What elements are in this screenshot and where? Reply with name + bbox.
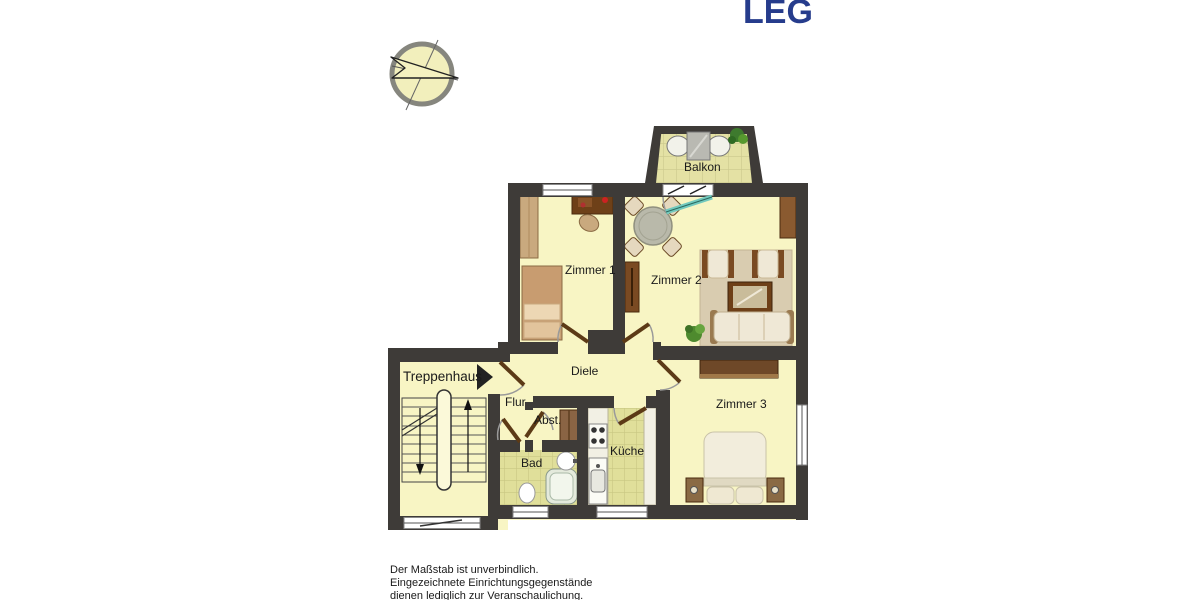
- disclaimer-line: Eingezeichnete Einrichtungsgegenstände: [390, 577, 592, 590]
- wardrobe: [700, 360, 778, 378]
- kitchen-cupboard: [644, 408, 656, 505]
- window: [543, 185, 592, 196]
- bathtub: [546, 469, 577, 504]
- sofa: [710, 310, 794, 344]
- nightstand: [767, 478, 784, 502]
- coffee-table: [728, 282, 772, 312]
- floorplan-page: LEG: [0, 0, 1200, 600]
- label-diele: Diele: [571, 364, 599, 378]
- label-abst: Abst.: [534, 413, 561, 427]
- label-zimmer2: Zimmer 2: [651, 273, 702, 287]
- armchair: [702, 250, 734, 278]
- label-zimmer1: Zimmer 1: [565, 263, 616, 277]
- label-treppenhaus: Treppenhaus: [403, 369, 482, 384]
- floorplan-drawing: Balkon Zimmer 1 Zimmer 2 Zimmer 3 Treppe…: [0, 0, 1200, 600]
- stair-rail: [437, 390, 451, 490]
- window: [404, 518, 480, 529]
- compass-icon: [391, 40, 458, 110]
- label-kueche: Küche: [610, 444, 644, 458]
- single-bed: [522, 266, 562, 340]
- window: [797, 405, 807, 465]
- disclaimer-line: Der Maßstab ist unverbindlich.: [390, 564, 592, 577]
- label-zimmer3: Zimmer 3: [716, 397, 767, 411]
- balcony: [645, 126, 763, 183]
- label-flur: Flur: [505, 395, 526, 409]
- kitchen-sink: [589, 458, 607, 504]
- window: [597, 507, 647, 518]
- window: [513, 507, 548, 518]
- label-bad: Bad: [521, 456, 542, 470]
- balcony-table-set: [667, 132, 730, 160]
- armchair: [752, 250, 784, 278]
- disclaimer-line: dienen lediglich zur Veranschaulichung.: [390, 590, 592, 600]
- disclaimer: Der Maßstab ist unverbindlich. Eingezeic…: [390, 564, 592, 600]
- label-balkon: Balkon: [684, 160, 721, 174]
- toilet: [519, 483, 535, 503]
- balcony-door-threshold: [663, 185, 713, 196]
- stove: [589, 424, 607, 448]
- leg-logo: LEG: [743, 0, 813, 32]
- nightstand: [686, 478, 703, 502]
- cabinet: [780, 196, 796, 238]
